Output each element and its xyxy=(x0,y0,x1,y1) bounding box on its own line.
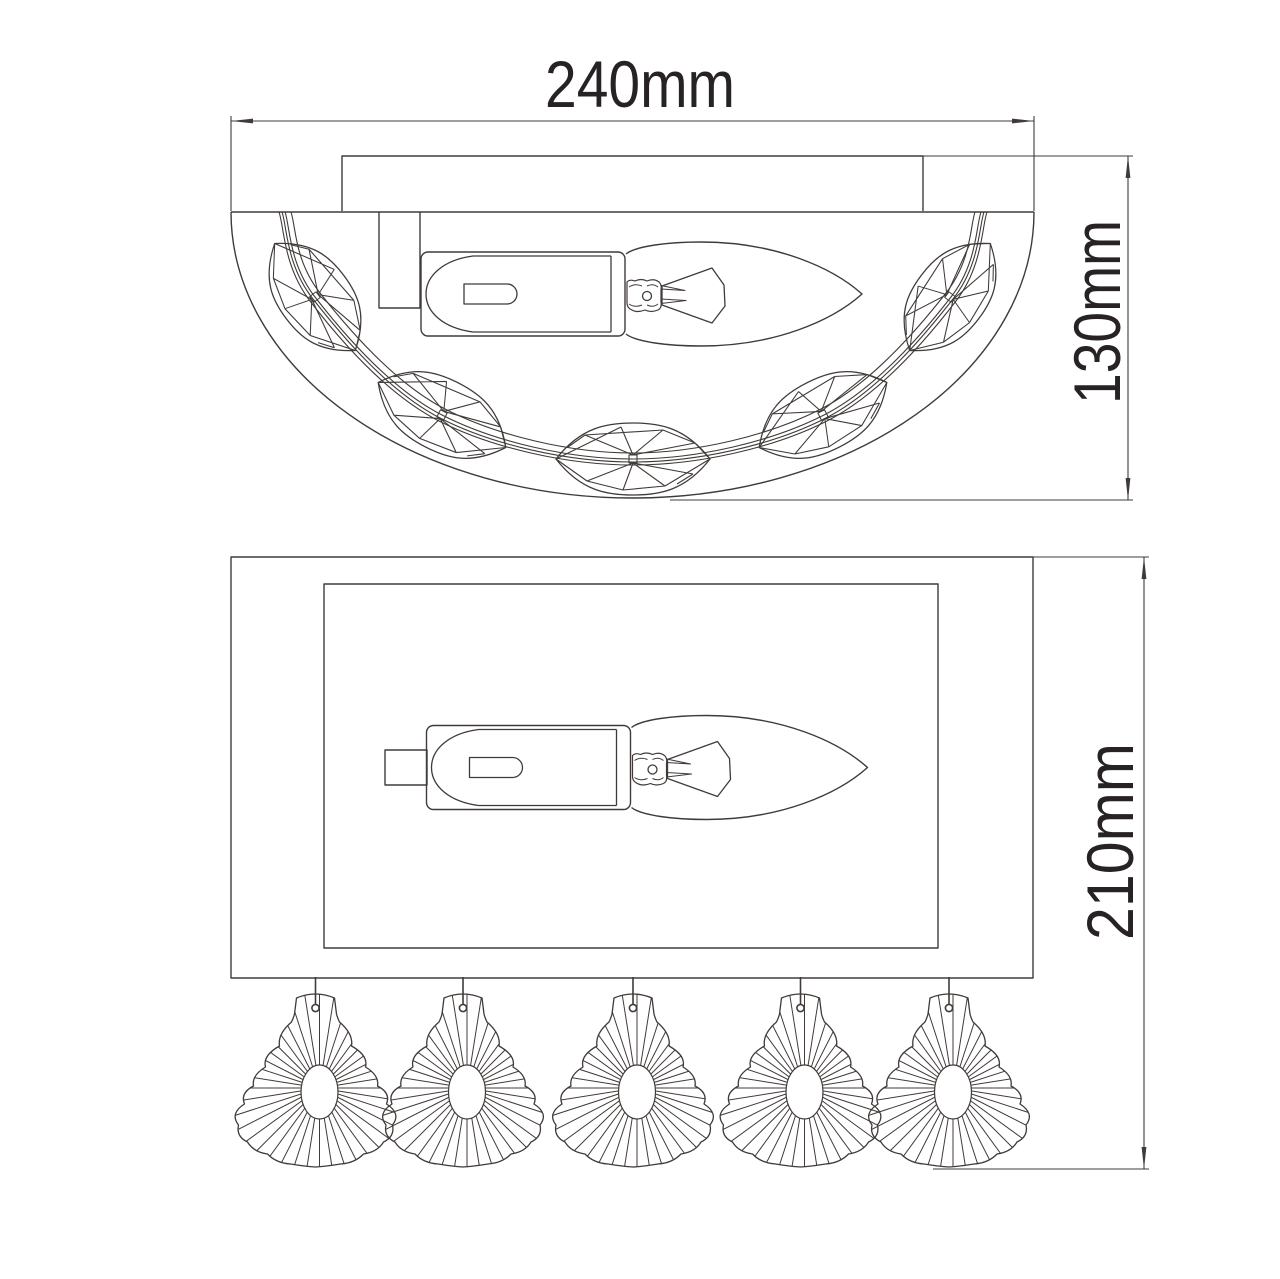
svg-text:130mm: 130mm xyxy=(1060,220,1134,404)
svg-text:240mm: 240mm xyxy=(545,47,735,121)
svg-text:210mm: 210mm xyxy=(1073,743,1147,940)
